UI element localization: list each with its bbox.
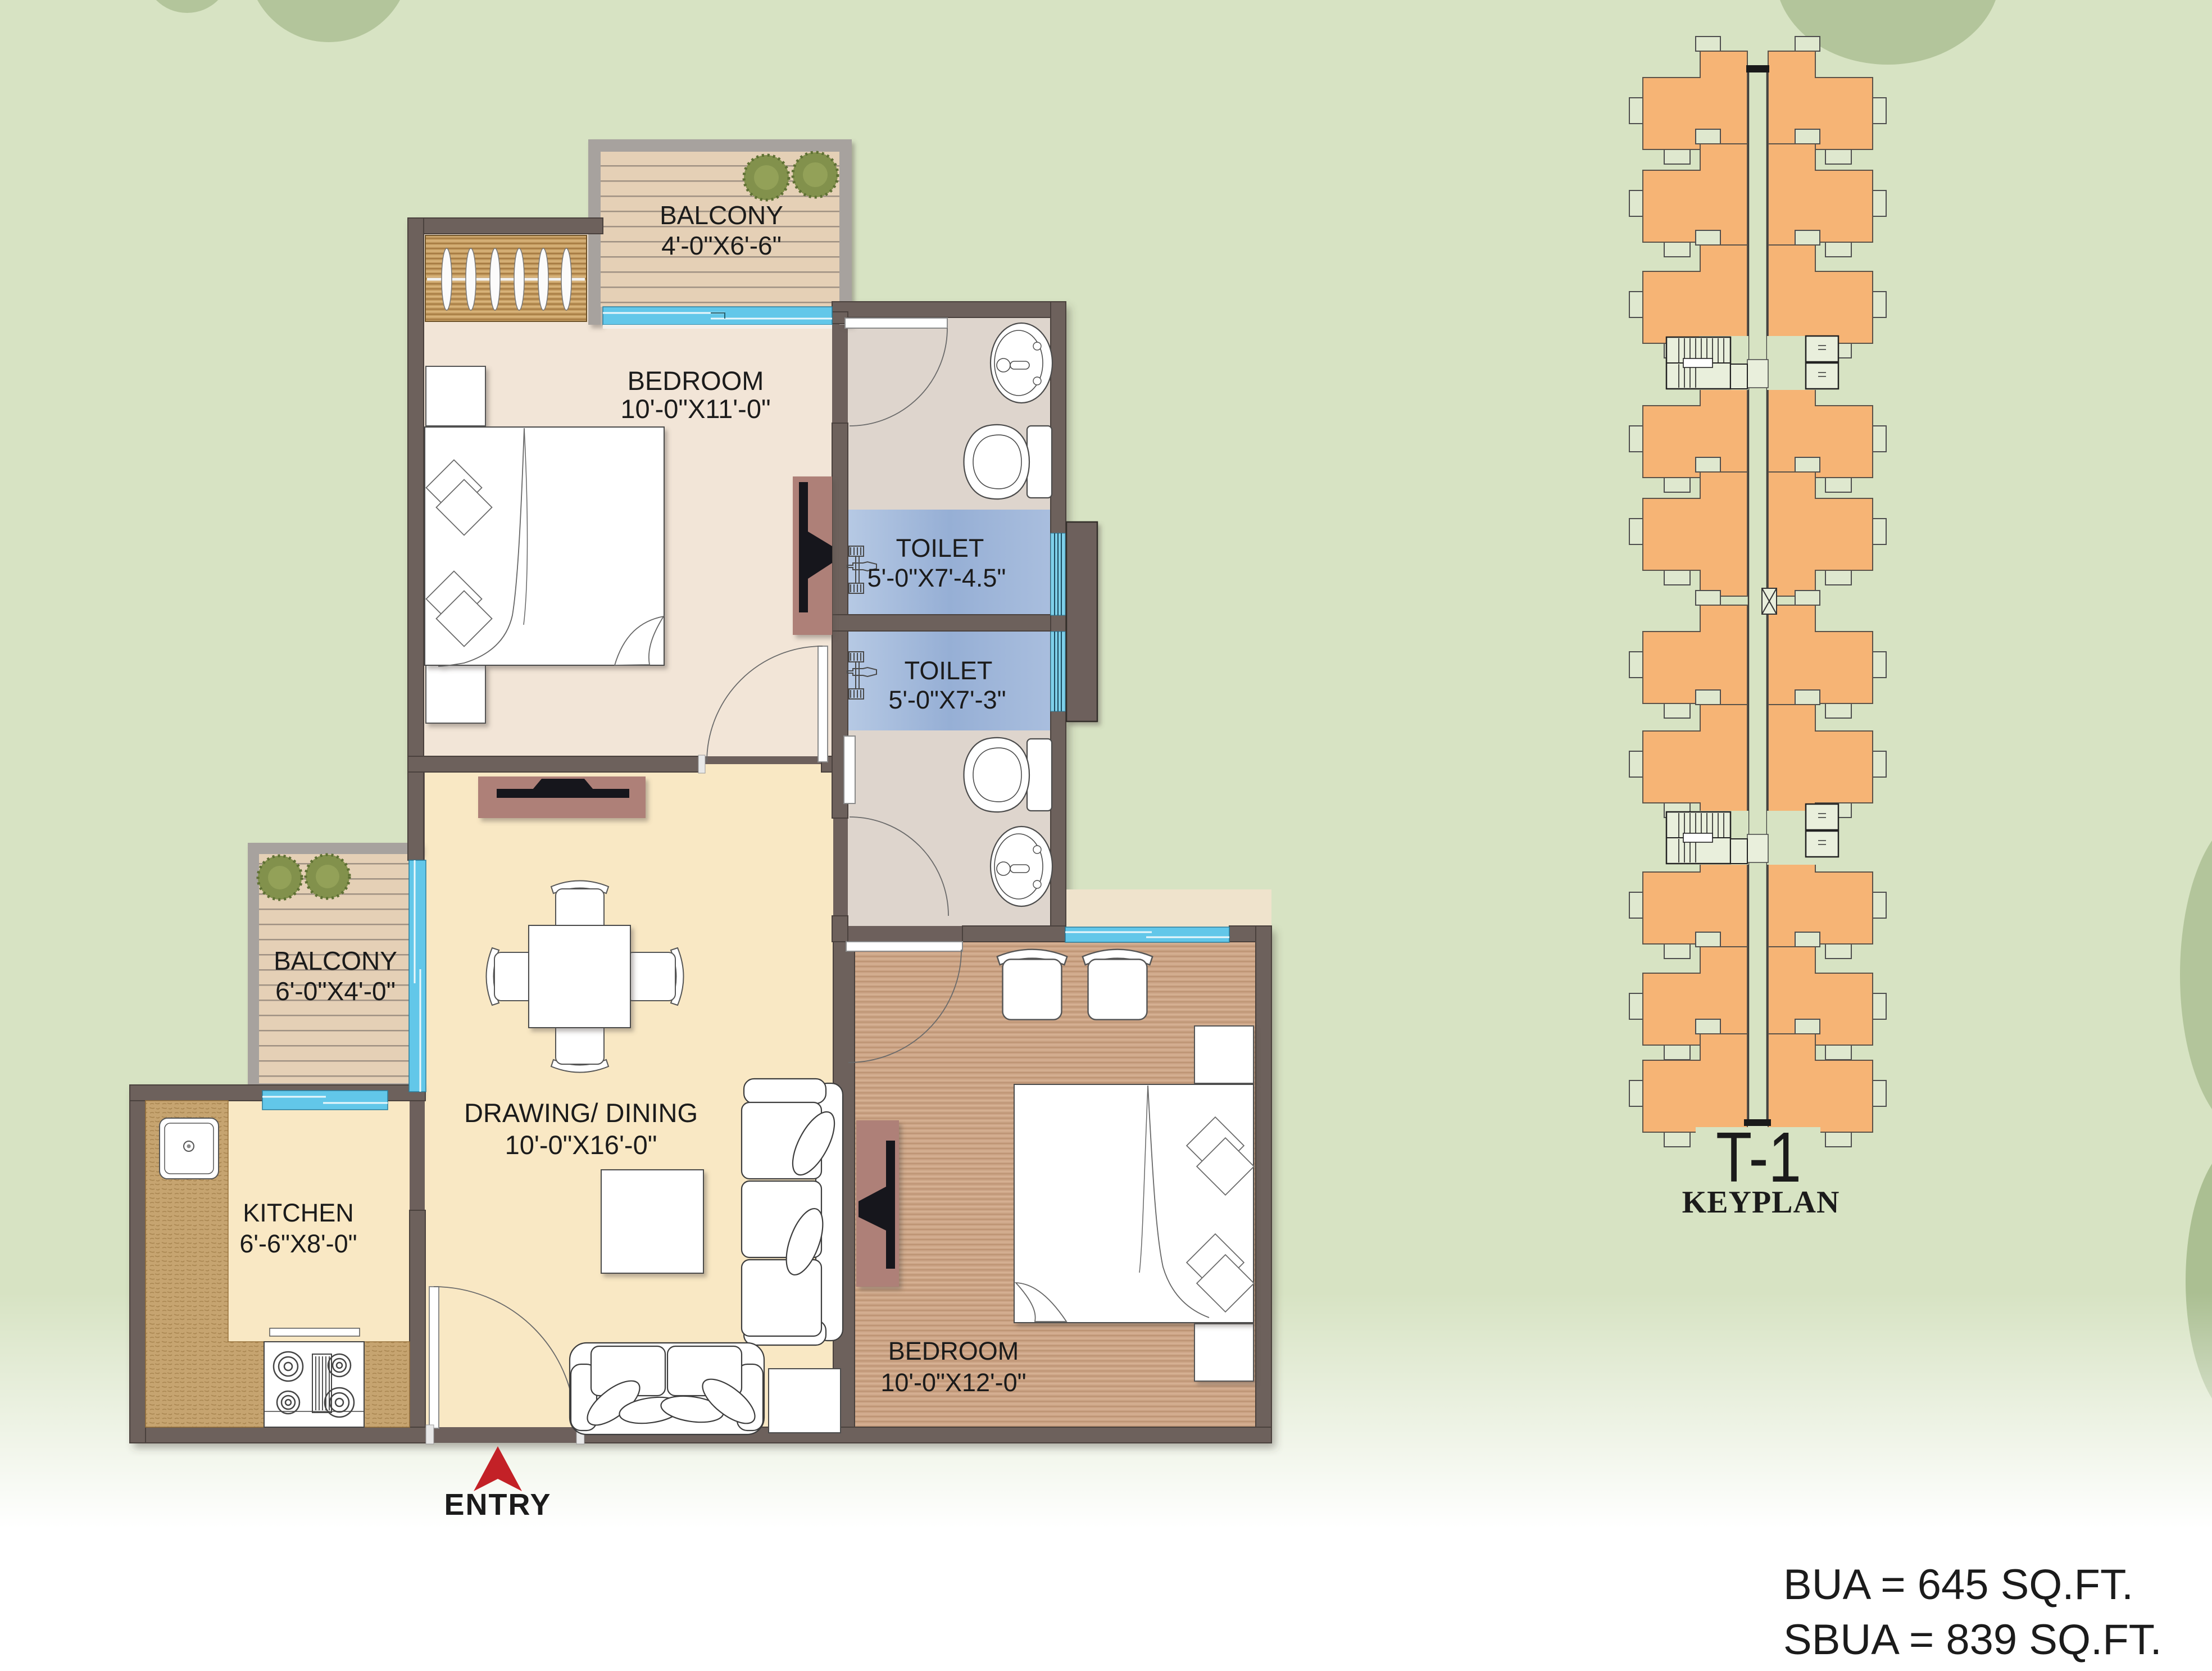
svg-text:5'-0"X7'-3": 5'-0"X7'-3" xyxy=(888,685,1006,714)
svg-text:BEDROOM: BEDROOM xyxy=(888,1337,1019,1365)
svg-text:KITCHEN: KITCHEN xyxy=(243,1198,354,1227)
svg-text:TOILET: TOILET xyxy=(905,656,993,685)
svg-text:BALCONY: BALCONY xyxy=(660,201,783,230)
svg-text:BALCONY: BALCONY xyxy=(274,946,397,975)
svg-text:SBUA = 839 SQ.FT.: SBUA = 839 SQ.FT. xyxy=(1783,1616,2162,1664)
svg-text:BEDROOM: BEDROOM xyxy=(628,366,764,396)
svg-text:6'-6"X8'-0": 6'-6"X8'-0" xyxy=(239,1229,357,1258)
svg-text:5'-0"X7'-4.5": 5'-0"X7'-4.5" xyxy=(867,564,1006,592)
svg-text:10'-0"X12'-0": 10'-0"X12'-0" xyxy=(880,1368,1026,1397)
svg-text:10'-0"X16'-0": 10'-0"X16'-0" xyxy=(505,1130,657,1160)
svg-text:DRAWING/ DINING: DRAWING/ DINING xyxy=(464,1098,698,1128)
svg-text:4'-0"X6'-6": 4'-0"X6'-6" xyxy=(661,231,782,260)
svg-text:10'-0"X11'-0": 10'-0"X11'-0" xyxy=(620,394,770,424)
svg-text:KEYPLAN: KEYPLAN xyxy=(1682,1185,1840,1220)
svg-text:BUA = 645 SQ.FT.: BUA = 645 SQ.FT. xyxy=(1783,1561,2133,1609)
svg-text:6'-0"X4'-0": 6'-0"X4'-0" xyxy=(275,977,396,1006)
svg-text:TOILET: TOILET xyxy=(896,534,984,562)
svg-text:ENTRY: ENTRY xyxy=(444,1488,551,1522)
